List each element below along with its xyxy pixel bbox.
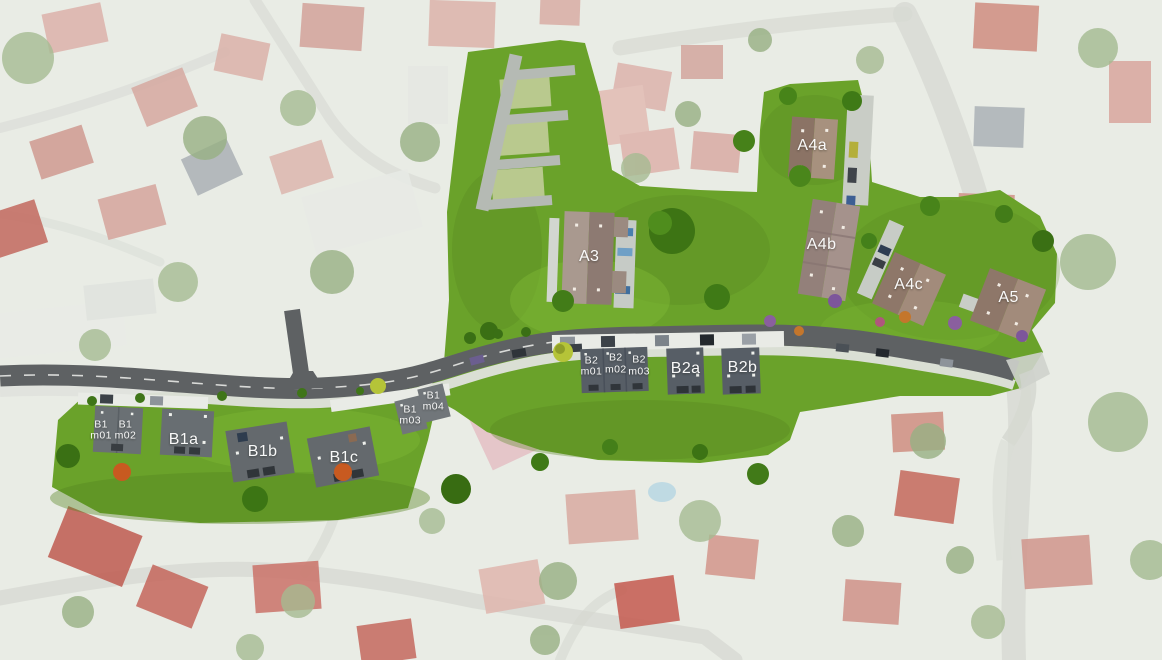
building-marker-A4a[interactable]: A4a	[797, 137, 827, 155]
building-marker-A3[interactable]: A3	[579, 248, 599, 266]
building-marker-B1-m04[interactable]: B1m04	[423, 390, 445, 413]
building-marker-B1-m01[interactable]: B1m01	[90, 419, 112, 442]
building-marker-B1-m02[interactable]: B1m02	[115, 419, 137, 442]
building-markers-layer: A4a A4b A4c A5 A3 B2m01 B2m02 B2m03 B2a …	[0, 0, 1162, 660]
building-marker-B2b[interactable]: B2b	[728, 359, 758, 377]
building-marker-B2-m02[interactable]: B2m02	[605, 353, 627, 376]
building-marker-B1c[interactable]: B1c	[330, 449, 359, 467]
building-marker-A4c[interactable]: A4c	[894, 276, 923, 294]
building-marker-B1b[interactable]: B1b	[248, 443, 278, 461]
building-marker-A5[interactable]: A5	[998, 289, 1018, 307]
site-plan-canvas: A4a A4b A4c A5 A3 B2m01 B2m02 B2m03 B2a …	[0, 0, 1162, 660]
building-marker-A4b[interactable]: A4b	[807, 236, 837, 254]
building-marker-B1-m03[interactable]: B1m03	[399, 404, 421, 427]
building-marker-B2-m03[interactable]: B2m03	[628, 355, 650, 378]
building-marker-B2a[interactable]: B2a	[671, 360, 701, 378]
building-marker-B2-m01[interactable]: B2m01	[581, 355, 603, 378]
building-marker-B1a[interactable]: B1a	[169, 431, 199, 449]
